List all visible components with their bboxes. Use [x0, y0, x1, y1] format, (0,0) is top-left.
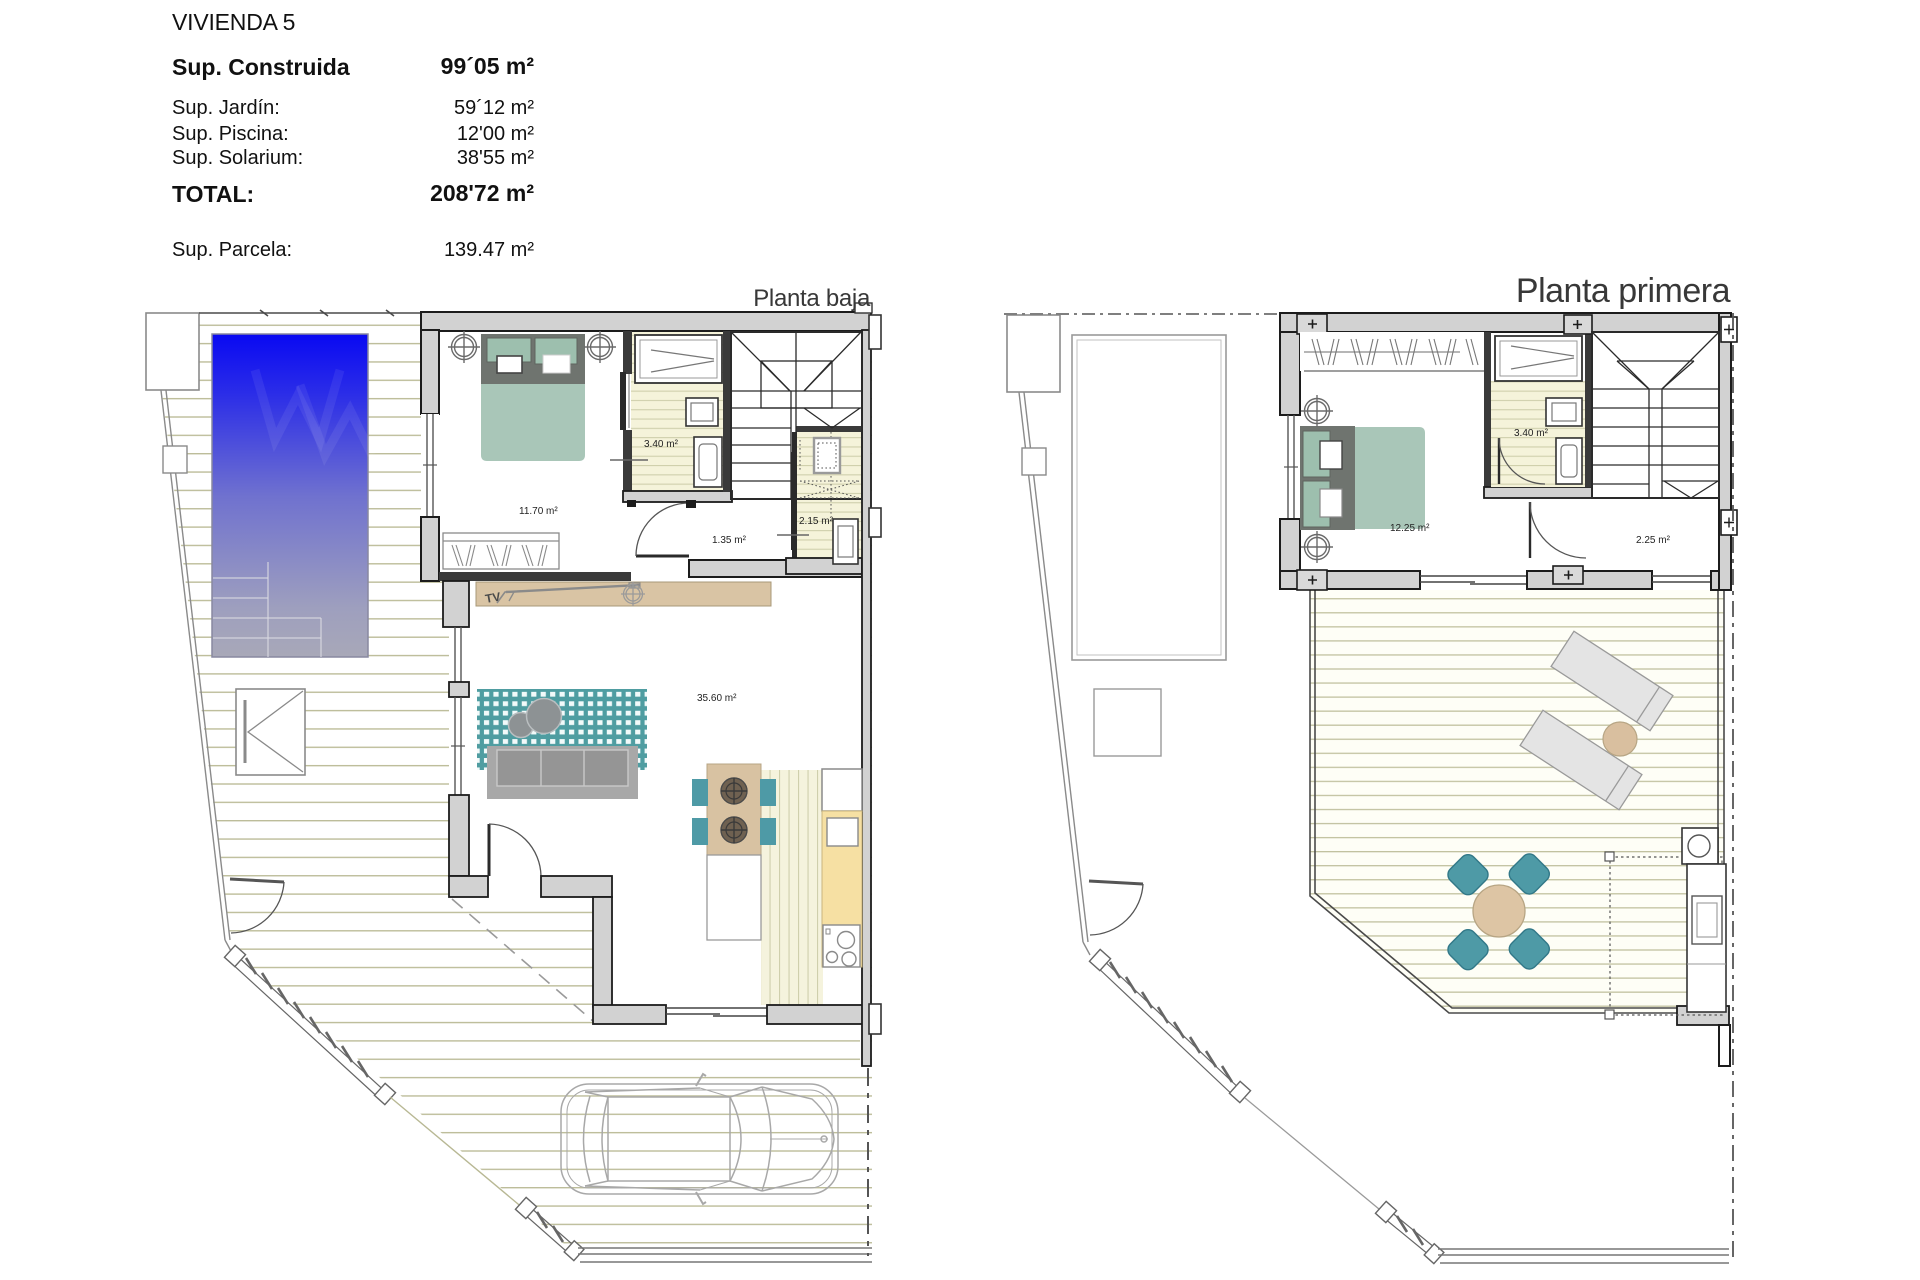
svg-text:Sup. Solarium:: Sup. Solarium:	[172, 147, 303, 169]
svg-text:2.25 m²: 2.25 m²	[1636, 535, 1671, 546]
svg-text:139.47 m²: 139.47 m²	[444, 239, 534, 261]
svg-text:3.40 m²: 3.40 m²	[1514, 428, 1549, 439]
svg-text:Sup. Piscina:: Sup. Piscina:	[172, 123, 289, 145]
svg-text:35.60 m²: 35.60 m²	[697, 693, 737, 704]
svg-text:Sup. Parcela:: Sup. Parcela:	[172, 239, 292, 261]
svg-text:3.40 m²: 3.40 m²	[644, 439, 679, 450]
svg-text:99´05 m²: 99´05 m²	[441, 53, 535, 79]
svg-text:38'55 m²: 38'55 m²	[457, 147, 535, 169]
svg-text:59´12 m²: 59´12 m²	[454, 97, 534, 119]
svg-text:12.25 m²: 12.25 m²	[1390, 523, 1430, 534]
svg-text:Sup. Construida: Sup. Construida	[172, 54, 350, 80]
svg-text:TOTAL:: TOTAL:	[172, 181, 254, 207]
svg-text:TV: TV	[484, 590, 502, 606]
svg-text:Sup. Jardín:: Sup. Jardín:	[172, 97, 280, 119]
svg-text:Planta baja: Planta baja	[753, 285, 871, 312]
svg-text:Planta primera: Planta primera	[1516, 272, 1731, 310]
svg-text:1.35 m²: 1.35 m²	[712, 535, 747, 546]
svg-text:208'72 m²: 208'72 m²	[430, 180, 534, 206]
svg-text:VIVIENDA 5: VIVIENDA 5	[172, 9, 295, 35]
svg-text:12'00 m²: 12'00 m²	[457, 123, 535, 145]
svg-text:11.70 m²: 11.70 m²	[519, 506, 558, 517]
svg-text:2.15 m²: 2.15 m²	[799, 516, 834, 527]
